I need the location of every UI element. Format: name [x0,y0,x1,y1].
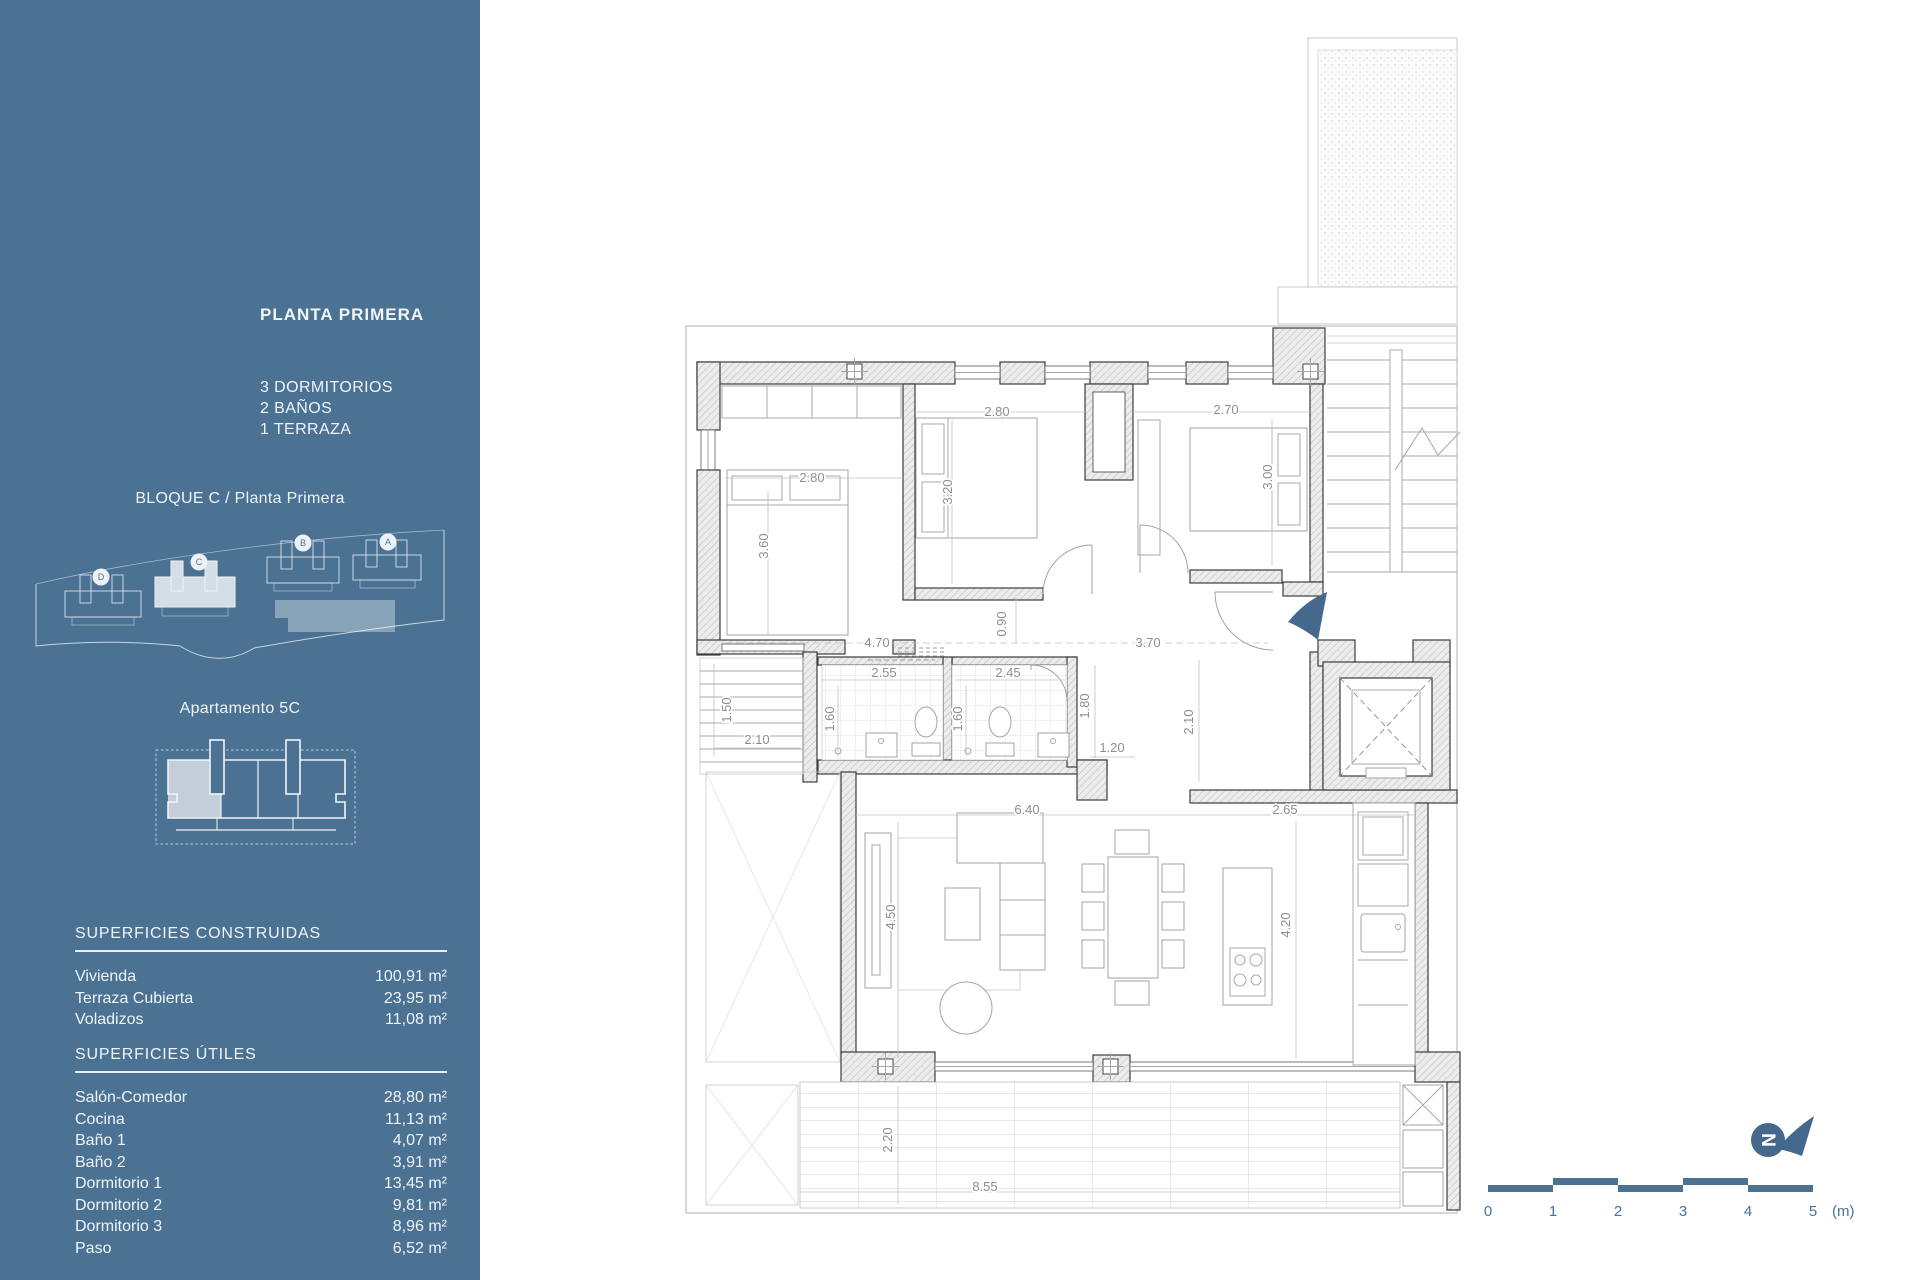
row-value: 9,81 m² [393,1195,447,1217]
scale-tick-label: 0 [1484,1203,1492,1220]
program-item: 1 TERRAZA [260,419,393,440]
dimension-label: 1.20 [1099,740,1124,755]
terrace [706,1082,1443,1208]
table-row: Dormitorio 38,96 m² [75,1216,447,1238]
bedroom-3 [1138,420,1307,573]
table-row: Terraza Cubierta23,95 m² [75,988,447,1010]
side-steps [700,658,803,774]
stairs [1327,336,1460,572]
page: PLANTA PRIMERA 3 DORMITORIOS2 BAÑOS1 TER… [0,0,1920,1280]
row-label: Dormitorio 2 [75,1195,162,1217]
program-item: 3 DORMITORIOS [260,377,393,398]
dimension-label: 4.70 [864,635,889,650]
table-row: Cocina11,13 m² [75,1109,447,1131]
row-value: 23,95 m² [384,988,447,1010]
table-rows: Vivienda100,91 m²Terraza Cubierta23,95 m… [75,966,447,1031]
entry-arrow-icon [1288,592,1327,640]
row-label: Voladizos [75,1009,144,1031]
table-row: Vivienda100,91 m² [75,966,447,988]
row-label: Paso [75,1238,111,1260]
dimension-label: 0.90 [994,611,1009,636]
scale-tick-label: 5 [1809,1203,1817,1220]
row-label: Dormitorio 1 [75,1173,162,1195]
superficies-construidas-table: SUPERFICIES CONSTRUIDAS Vivienda100,91 m… [75,925,447,1031]
dimension-label: 6.40 [1014,802,1039,817]
terrace-storage [1403,1085,1443,1206]
scale-tick-label: 1 [1549,1203,1557,1220]
floor-plan-svg: 2.803.602.803.202.703.004.700.903.701.50… [480,0,1920,1280]
elevator [1340,678,1432,778]
bedroom-1 [722,386,901,635]
dimension-label: 2.65 [1272,802,1297,817]
unit-locator-diagram [138,738,382,856]
row-value: 8,96 m² [393,1216,447,1238]
table-row: Voladizos11,08 m² [75,1009,447,1031]
table-row: Salón-Comedor28,80 m² [75,1087,447,1109]
table-rows: Salón-Comedor28,80 m²Cocina11,13 m²Baño … [75,1087,447,1259]
dining-area [1082,830,1184,1005]
bedroom-2 [916,418,1092,594]
dimension-label: 1.80 [1077,693,1092,718]
dimension-label: 3.00 [1260,464,1275,489]
sidebar: PLANTA PRIMERA 3 DORMITORIOS2 BAÑOS1 TER… [0,0,480,1280]
dimension-label: 2.20 [880,1127,895,1152]
scale-bar: 012345(m) [1484,1178,1855,1220]
program-item: 2 BAÑOS [260,398,393,419]
dimension-label: 1.50 [719,697,734,722]
site-pool [275,600,395,632]
table-title: SUPERFICIES CONSTRUIDAS [75,925,447,952]
row-label: Baño 1 [75,1130,126,1152]
row-label: Vivienda [75,966,136,988]
dimension-label: 2.70 [1213,402,1238,417]
table-row: Dormitorio 113,45 m² [75,1173,447,1195]
site-block-letter: D [98,572,105,582]
site-block-letter: A [385,537,391,547]
dimension-label: 2.80 [799,470,824,485]
dimension-label: 2.10 [1181,709,1196,734]
dimension-label: 4.50 [883,904,898,929]
table-row: Baño 23,91 m² [75,1152,447,1174]
site-block-letter: B [300,538,306,548]
voladizo-area [706,772,840,1062]
north-label: N [1757,1133,1778,1147]
row-value: 11,08 m² [385,1009,447,1031]
dimension-label: 2.80 [984,404,1009,419]
row-label: Baño 2 [75,1152,126,1174]
row-value: 4,07 m² [393,1130,447,1152]
table-title: SUPERFICIES ÚTILES [75,1046,447,1073]
dimension-label: 3.60 [756,533,771,558]
entry-door [1215,592,1327,650]
dimension-label: 8.55 [972,1179,997,1194]
dimension-label: 2.55 [871,665,896,680]
row-value: 28,80 m² [384,1087,447,1109]
table-row: Baño 14,07 m² [75,1130,447,1152]
dimension-label: 2.10 [744,732,769,747]
dimension-label: 1.60 [822,706,837,731]
dimension-label: 3.20 [940,479,955,504]
north-indicator: N [1751,1116,1814,1157]
row-value: 3,91 m² [393,1152,447,1174]
row-value: 100,91 m² [375,966,447,988]
dimension-label: 3.70 [1135,635,1160,650]
row-label: Salón-Comedor [75,1087,187,1109]
scale-tick-label: 3 [1679,1203,1687,1220]
block-caption: BLOQUE C / Planta Primera [15,490,465,508]
dimension-label: 2.45 [995,665,1020,680]
table-row: Dormitorio 29,81 m² [75,1195,447,1217]
table-row: Paso6,52 m² [75,1238,447,1260]
row-label: Cocina [75,1109,125,1131]
site-block-letter: C [196,557,203,567]
row-value: 13,45 m² [384,1173,447,1195]
scale-unit-label: (m) [1832,1203,1855,1220]
row-value: 11,13 m² [385,1109,447,1131]
row-label: Dormitorio 3 [75,1216,162,1238]
roof-zone [1278,38,1457,324]
apartment-caption: Apartamento 5C [15,700,465,718]
program-list: 3 DORMITORIOS2 BAÑOS1 TERRAZA [260,377,393,440]
dimension-label: 1.60 [950,706,965,731]
scale-tick-label: 4 [1744,1203,1752,1220]
scale-tick-label: 2 [1614,1203,1622,1220]
dimension-label: 4.20 [1278,912,1293,937]
page-title: PLANTA PRIMERA [260,305,424,325]
row-value: 6,52 m² [393,1238,447,1260]
row-label: Terraza Cubierta [75,988,193,1010]
kitchen [1223,803,1415,1065]
site-plan-diagram: DCBA [30,522,450,667]
superficies-utiles-table: SUPERFICIES ÚTILES Salón-Comedor28,80 m²… [75,1046,447,1259]
